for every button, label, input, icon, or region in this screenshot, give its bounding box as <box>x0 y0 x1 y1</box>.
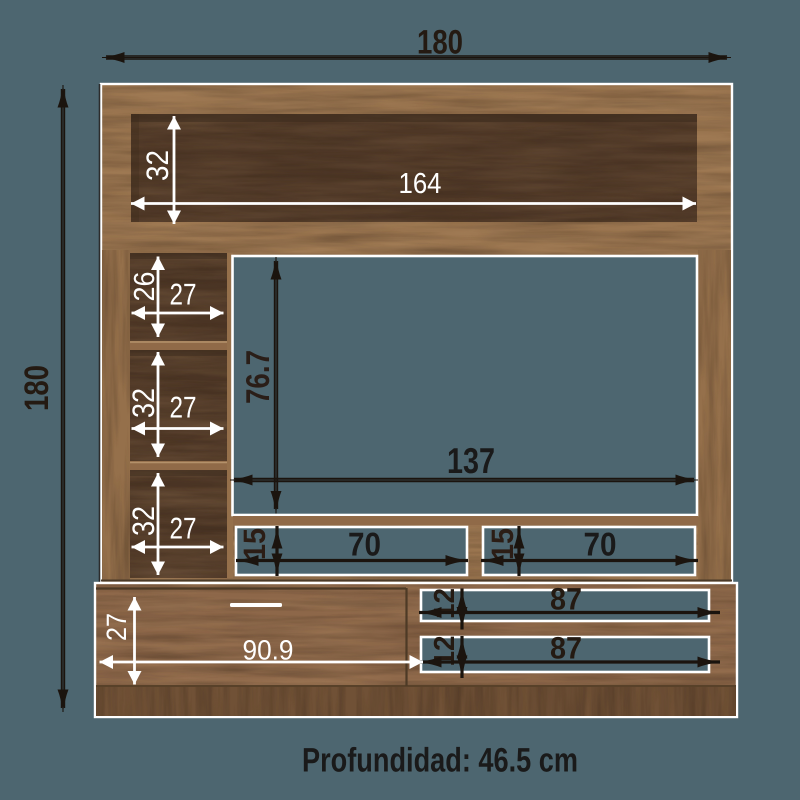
svg-text:70: 70 <box>584 526 617 563</box>
svg-text:32: 32 <box>140 150 175 181</box>
svg-text:26: 26 <box>129 272 161 302</box>
svg-text:27: 27 <box>101 613 132 641</box>
svg-text:87: 87 <box>550 582 582 617</box>
svg-text:76.7: 76.7 <box>239 350 276 404</box>
svg-text:70: 70 <box>348 526 381 563</box>
svg-text:137: 137 <box>447 440 495 481</box>
svg-text:15: 15 <box>237 528 272 560</box>
svg-text:Profundidad: 46.5 cm: Profundidad: 46.5 cm <box>302 742 578 780</box>
svg-text:87: 87 <box>550 631 582 666</box>
svg-text:12: 12 <box>429 588 461 619</box>
svg-text:32: 32 <box>126 506 161 536</box>
svg-text:32: 32 <box>126 388 161 418</box>
svg-text:180: 180 <box>417 24 463 62</box>
svg-text:27: 27 <box>170 279 197 312</box>
svg-text:180: 180 <box>18 365 56 411</box>
svg-text:27: 27 <box>170 513 197 546</box>
svg-text:164: 164 <box>399 168 442 200</box>
svg-text:15: 15 <box>485 528 520 560</box>
svg-text:27: 27 <box>170 392 197 425</box>
svg-text:90.9: 90.9 <box>243 635 294 666</box>
